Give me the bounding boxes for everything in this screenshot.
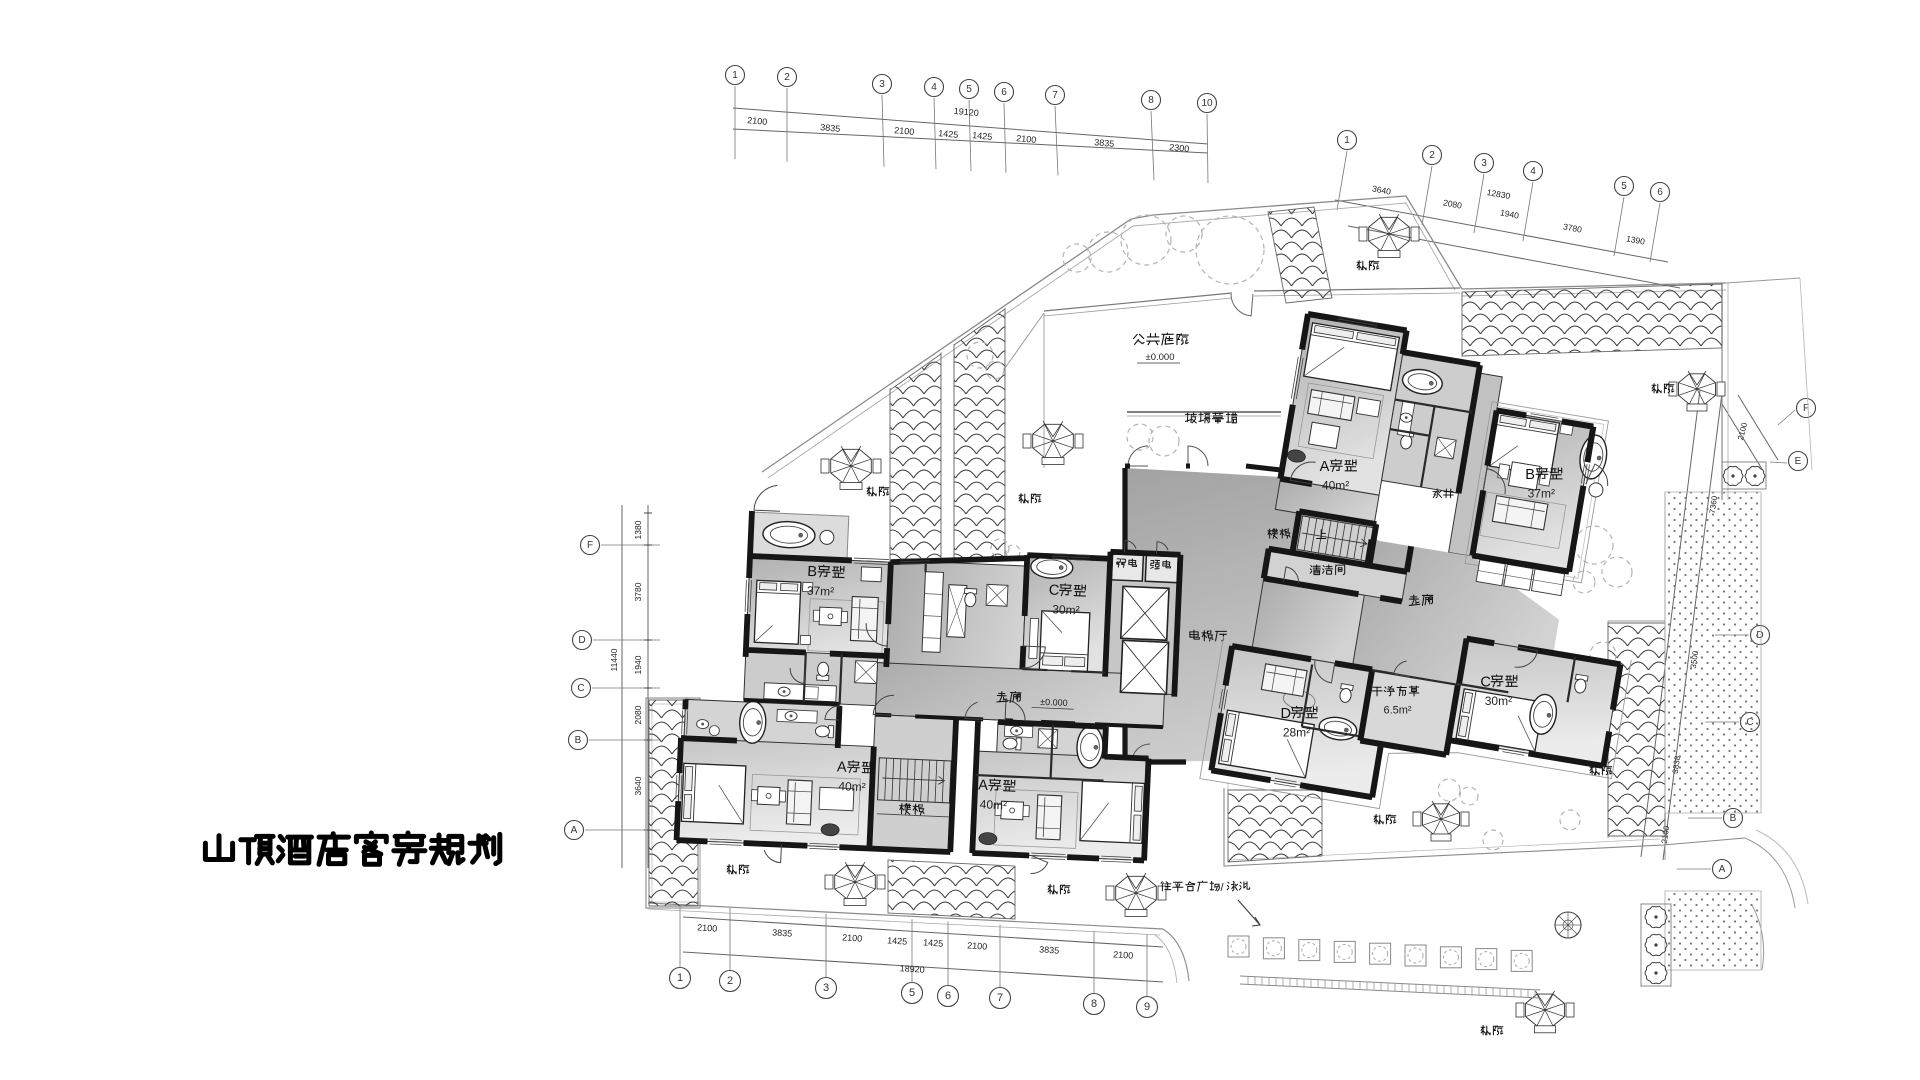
- svg-text:2080: 2080: [633, 705, 643, 724]
- svg-text:1940: 1940: [633, 655, 643, 674]
- svg-text:40m²: 40m²: [1322, 478, 1349, 492]
- svg-text:40m²: 40m²: [838, 779, 866, 794]
- svg-text:C: C: [1480, 674, 1491, 690]
- svg-text:2100: 2100: [747, 115, 768, 127]
- svg-text:2100: 2100: [842, 932, 863, 943]
- svg-text:3835: 3835: [1039, 944, 1060, 955]
- svg-text:A: A: [571, 825, 578, 836]
- svg-text:6: 6: [1657, 187, 1663, 198]
- svg-text:37m²: 37m²: [1528, 486, 1555, 500]
- svg-text:A: A: [978, 778, 989, 794]
- svg-text:5: 5: [909, 987, 915, 999]
- svg-text:18920: 18920: [899, 963, 925, 975]
- svg-text:2: 2: [784, 72, 790, 83]
- svg-text:1425: 1425: [938, 128, 959, 140]
- svg-text:D: D: [1280, 706, 1291, 722]
- svg-text:6.5m²: 6.5m²: [1383, 705, 1411, 717]
- svg-text:B: B: [1525, 467, 1535, 483]
- svg-text:8: 8: [1148, 95, 1154, 106]
- svg-text:F: F: [587, 540, 593, 551]
- svg-text:3835: 3835: [820, 122, 841, 134]
- svg-text:3: 3: [823, 982, 829, 994]
- svg-text:7: 7: [1052, 90, 1058, 101]
- svg-text:6: 6: [945, 990, 951, 1002]
- svg-text:2100: 2100: [894, 125, 915, 137]
- svg-text:1425: 1425: [972, 130, 993, 142]
- svg-text:4: 4: [1530, 166, 1536, 177]
- svg-text:2: 2: [1429, 150, 1435, 161]
- svg-text:10: 10: [1201, 98, 1213, 109]
- svg-text:6: 6: [1001, 87, 1007, 98]
- svg-text:2300: 2300: [1169, 142, 1190, 154]
- svg-text:2100: 2100: [1113, 949, 1134, 960]
- svg-text:8: 8: [1091, 998, 1097, 1010]
- svg-text:40m²: 40m²: [979, 797, 1007, 812]
- svg-text:2100: 2100: [697, 922, 718, 933]
- svg-text:11440: 11440: [609, 648, 619, 671]
- svg-text:5: 5: [1621, 181, 1627, 192]
- svg-text:±0.000: ±0.000: [1040, 697, 1068, 708]
- svg-text:3640: 3640: [633, 776, 643, 795]
- svg-text:1: 1: [677, 972, 683, 984]
- svg-text:B: B: [1730, 813, 1737, 824]
- svg-text:C: C: [1048, 582, 1059, 598]
- svg-text:3: 3: [1481, 158, 1487, 169]
- svg-text:9: 9: [1144, 1001, 1150, 1013]
- svg-text:C: C: [577, 683, 584, 694]
- svg-text:±0.000: ±0.000: [1146, 352, 1175, 363]
- svg-text:2: 2: [727, 975, 733, 987]
- svg-text:3835: 3835: [1094, 137, 1115, 149]
- svg-text:4: 4: [931, 82, 937, 93]
- svg-text:30m²: 30m²: [1485, 694, 1512, 708]
- svg-text:1380: 1380: [633, 520, 643, 539]
- svg-text:2100: 2100: [967, 940, 988, 951]
- svg-text:2100: 2100: [1016, 133, 1037, 145]
- svg-text:1425: 1425: [923, 937, 944, 948]
- svg-text:D: D: [578, 635, 585, 646]
- svg-text:B: B: [807, 564, 817, 580]
- svg-text:30m²: 30m²: [1052, 602, 1080, 617]
- svg-text:3835: 3835: [772, 927, 793, 938]
- svg-text:7: 7: [997, 992, 1003, 1004]
- svg-text:1: 1: [732, 70, 738, 81]
- svg-text:A: A: [837, 759, 848, 775]
- svg-text:1425: 1425: [887, 935, 908, 946]
- svg-text:1: 1: [1344, 135, 1350, 146]
- svg-text:B: B: [575, 735, 582, 746]
- svg-text:3: 3: [879, 79, 885, 90]
- svg-text:E: E: [1795, 456, 1802, 467]
- svg-text:A: A: [1320, 459, 1330, 475]
- svg-text:28m²: 28m²: [1283, 725, 1310, 739]
- svg-text:5: 5: [966, 84, 972, 95]
- svg-text:37m²: 37m²: [807, 584, 835, 599]
- svg-text:3780: 3780: [633, 582, 643, 601]
- svg-text:A: A: [1719, 864, 1726, 875]
